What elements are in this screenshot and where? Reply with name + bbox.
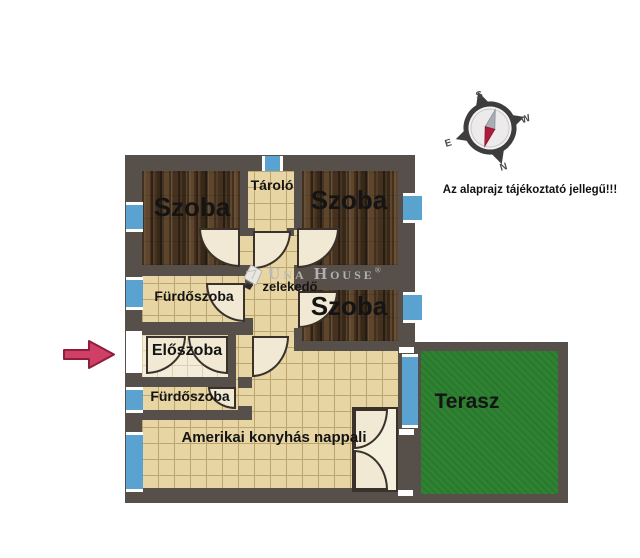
wall-szoba-middle-left — [294, 328, 302, 341]
room-label-terasz: Terasz — [421, 391, 513, 413]
terrace-glass-door — [402, 354, 418, 428]
jamb-terrace-door-top — [399, 347, 414, 353]
wall-under-szoba-middle — [294, 341, 398, 351]
room-label-tarolo: Tároló — [244, 178, 300, 193]
window-left-furdoszoba-upper — [126, 277, 143, 310]
room-label-szoba-middle: Szoba — [300, 293, 398, 320]
window-left-nappali — [126, 432, 143, 492]
room-label-szoba-top-right: Szoba — [300, 187, 398, 214]
room-label-szoba-top-left: Szoba — [142, 194, 242, 221]
room-label-furdoszoba-lower: Fürdőszoba — [140, 389, 240, 404]
window-left-szoba — [126, 202, 143, 232]
room-label-nappali: Amerikai konyhás nappali — [158, 430, 390, 446]
disclaimer-note: Az alaprajz tájékoztató jellegű!!! — [428, 184, 632, 196]
window-top-tarolo — [262, 156, 283, 171]
room-label-eloszoba: Előszoba — [142, 343, 232, 360]
wall-furdoszoba-lower-right-upper — [238, 377, 252, 388]
floorplan-canvas: Szoba Szoba Szoba Tároló Fürdőszoba Elős… — [0, 0, 640, 558]
wall-furdoszoba-upper-bottom — [142, 322, 253, 335]
jamb-bottom-right — [398, 490, 413, 496]
watermark-registered-mark: ® — [375, 265, 381, 274]
window-right-szoba-middle — [403, 292, 422, 323]
wall-furdoszoba-lower-bottom — [142, 410, 252, 420]
wall-eloszoba-bottom — [142, 377, 236, 387]
terrace-floor — [421, 351, 558, 494]
room-label-furdoszoba-upper: Fürdőszoba — [142, 289, 246, 304]
entrance-opening — [126, 331, 142, 373]
window-right-szoba-top — [403, 193, 422, 223]
jamb-terrace-door-bottom — [399, 429, 414, 435]
compass-icon — [448, 84, 532, 172]
entrance-arrow-icon — [62, 338, 118, 372]
room-label-kozlekedo: zelekedő — [252, 280, 328, 294]
